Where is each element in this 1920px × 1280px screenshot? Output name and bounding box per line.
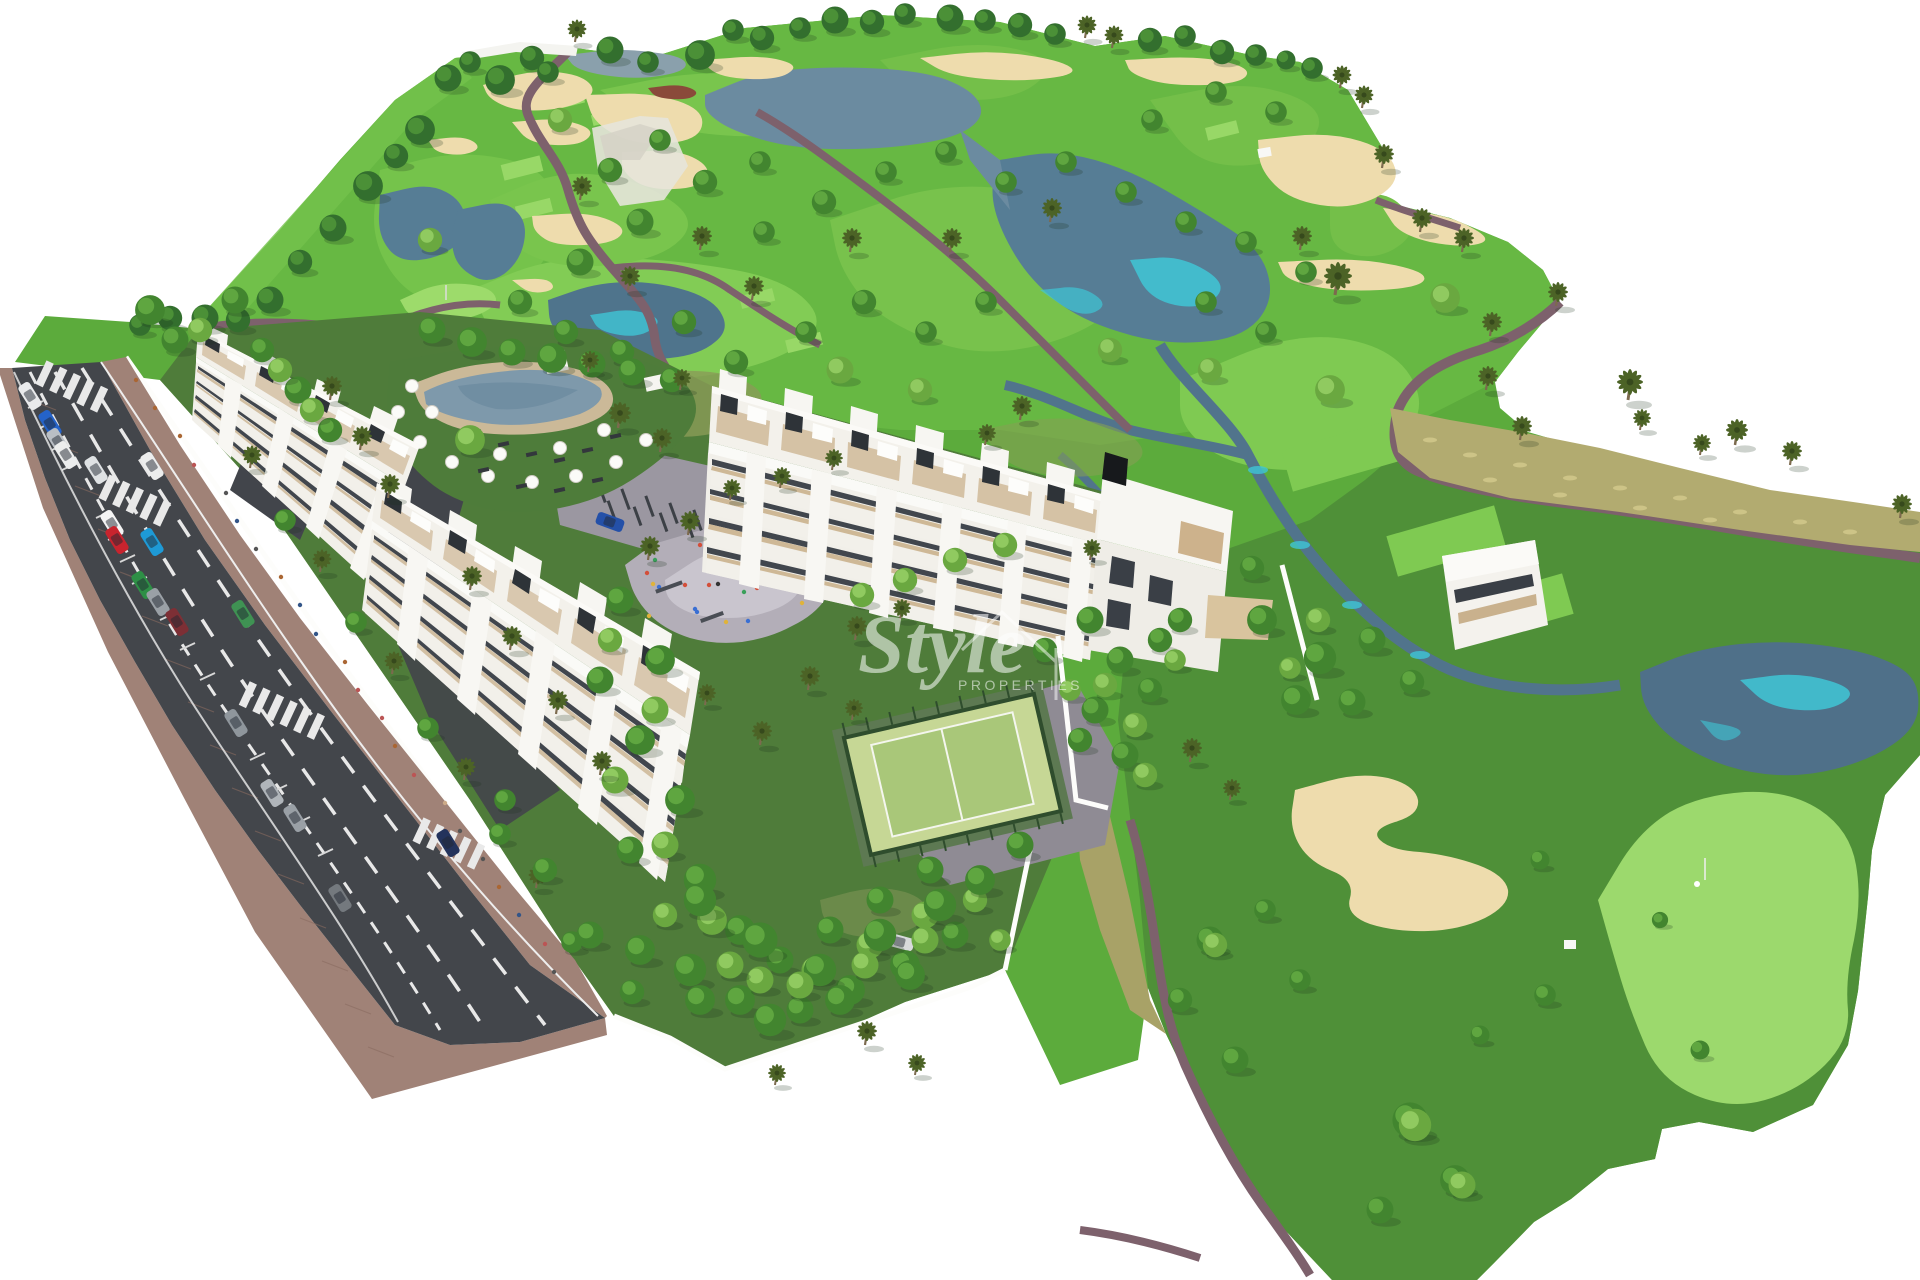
svg-text:PROPERTIES: PROPERTIES: [958, 677, 1083, 693]
